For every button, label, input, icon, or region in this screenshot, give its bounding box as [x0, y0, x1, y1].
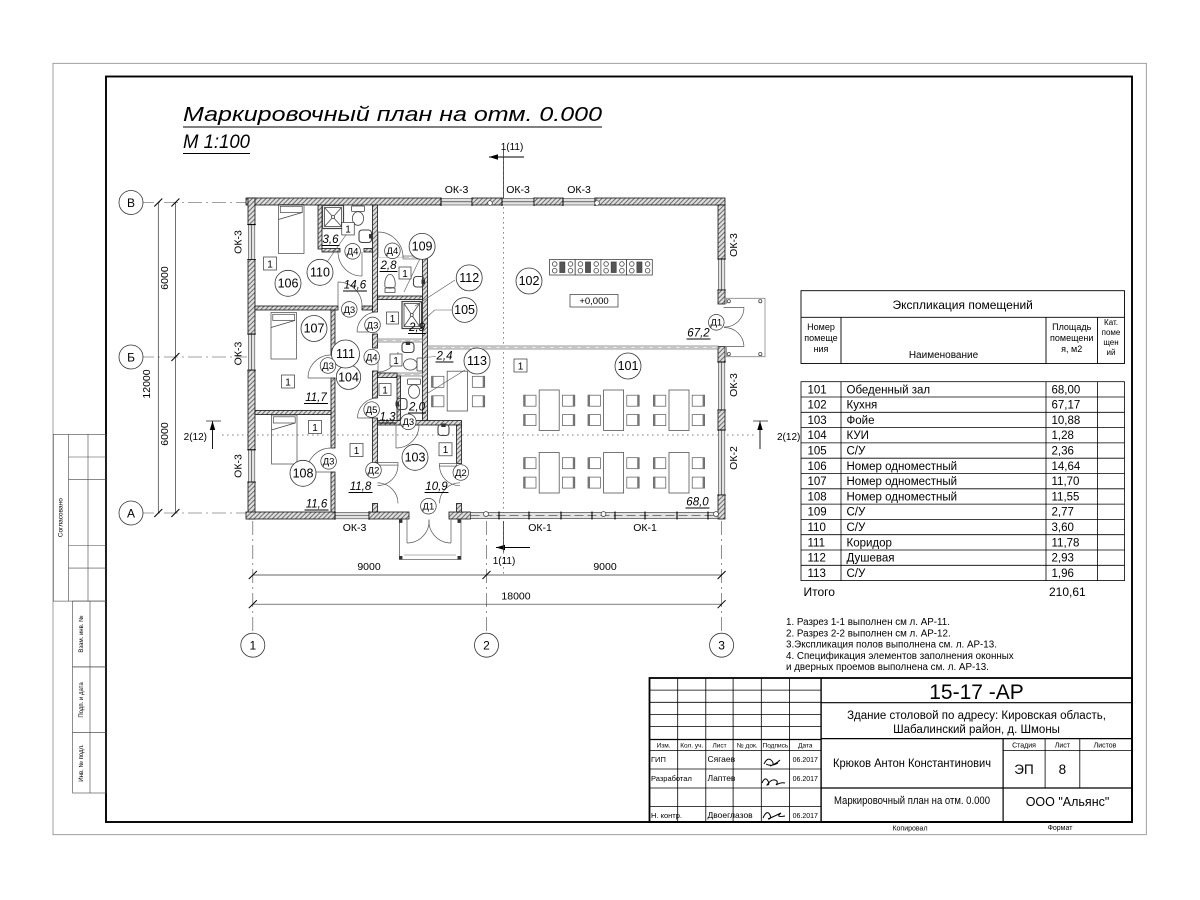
svg-text:3,60: 3,60 — [1052, 522, 1074, 534]
svg-text:Маркировочный план на отм. 0.: Маркировочный план на отм. 0.000 — [183, 103, 603, 126]
svg-text:Сягаев: Сягаев — [708, 754, 736, 764]
svg-text:6000: 6000 — [159, 266, 171, 290]
svg-text:111: 111 — [808, 537, 825, 549]
svg-text:+0,000: +0,000 — [579, 296, 608, 307]
svg-text:ния: ния — [814, 344, 829, 354]
svg-text:Здание столовой по адресу: Кир: Здание столовой по адресу: Кировская обл… — [847, 710, 1106, 722]
svg-text:Изм.: Изм. — [657, 743, 671, 750]
svg-text:ОК-3: ОК-3 — [233, 454, 245, 478]
svg-text:Номер одноместный: Номер одноместный — [847, 476, 958, 488]
svg-text:помещени: помещени — [1050, 333, 1093, 343]
svg-text:КУИ: КУИ — [847, 430, 869, 442]
svg-text:1: 1 — [402, 269, 408, 280]
svg-text:ОК-3: ОК-3 — [233, 230, 245, 254]
svg-text:4. Спецификация элементов запо: 4. Спецификация элементов заполнения око… — [786, 651, 1014, 662]
svg-text:Д2: Д2 — [368, 466, 380, 477]
svg-text:11,78: 11,78 — [1052, 537, 1080, 549]
svg-text:Экспликация помещений: Экспликация помещений — [893, 298, 1033, 312]
svg-text:12000: 12000 — [141, 369, 153, 398]
svg-text:А: А — [127, 507, 135, 521]
svg-text:Итого: Итого — [804, 585, 836, 599]
svg-text:11,8: 11,8 — [350, 481, 372, 493]
svg-text:Н. контр.: Н. контр. — [651, 811, 682, 820]
svg-text:ОК-3: ОК-3 — [343, 522, 367, 534]
svg-text:поме: поме — [1102, 328, 1121, 337]
svg-text:ГИП: ГИП — [651, 755, 666, 764]
svg-text:11,55: 11,55 — [1052, 491, 1080, 503]
svg-text:Кол. уч.: Кол. уч. — [680, 743, 703, 750]
svg-text:10,9: 10,9 — [425, 481, 448, 493]
svg-text:9000: 9000 — [357, 561, 381, 573]
svg-text:Обеденный зал: Обеденный зал — [847, 384, 931, 396]
svg-text:1. Разрез 1-1 выполнен см л. А: 1. Разрез 1-1 выполнен см л. АР-11. — [786, 617, 950, 628]
svg-text:Подп. и дата: Подп. и дата — [79, 682, 85, 718]
svg-text:10,88: 10,88 — [1052, 415, 1081, 427]
svg-text:Номер одноместный: Номер одноместный — [847, 461, 958, 473]
svg-text:107: 107 — [808, 476, 827, 488]
svg-text:Д5: Д5 — [366, 405, 378, 416]
svg-text:ОК-3: ОК-3 — [233, 342, 245, 366]
svg-text:102: 102 — [519, 274, 540, 288]
svg-text:Кат.: Кат. — [1104, 318, 1118, 327]
svg-text:2: 2 — [483, 639, 490, 653]
svg-text:ОК-3: ОК-3 — [728, 373, 740, 397]
svg-text:щен: щен — [1103, 338, 1118, 347]
svg-text:Копировал: Копировал — [892, 826, 927, 833]
svg-text:ОК-1: ОК-1 — [633, 522, 657, 534]
svg-text:ЭП: ЭП — [1014, 762, 1033, 777]
svg-text:ОК-3: ОК-3 — [445, 184, 469, 196]
svg-text:Д3: Д3 — [323, 457, 335, 468]
svg-text:Коридор: Коридор — [847, 537, 892, 549]
svg-text:ООО "Альянс": ООО "Альянс" — [1026, 795, 1110, 809]
svg-text:Номер: Номер — [807, 322, 835, 332]
svg-text:1: 1 — [393, 356, 399, 367]
svg-text:Инв. № подл.: Инв. № подл. — [78, 744, 85, 782]
svg-text:11,70: 11,70 — [1052, 476, 1080, 488]
svg-text:С/У: С/У — [847, 522, 867, 534]
svg-text:Дата: Дата — [798, 743, 813, 750]
svg-text:110: 110 — [808, 522, 826, 534]
svg-text:Фойе: Фойе — [847, 415, 875, 427]
svg-text:Д4: Д4 — [366, 353, 378, 364]
svg-text:Наименование: Наименование — [909, 350, 979, 361]
svg-text:и дверных проемов выполнена с: и дверных проемов выполнена см. л. АР-13… — [786, 662, 989, 673]
svg-text:Д2: Д2 — [455, 468, 467, 479]
svg-text:2(12): 2(12) — [184, 432, 207, 443]
svg-text:С/У: С/У — [847, 507, 867, 519]
svg-text:1: 1 — [267, 259, 273, 270]
svg-text:1,28: 1,28 — [1052, 430, 1074, 442]
svg-text:ОК-3: ОК-3 — [567, 184, 591, 196]
svg-text:Взам. инв. №: Взам. инв. № — [78, 615, 85, 652]
svg-text:В: В — [127, 196, 135, 210]
svg-text:С/У: С/У — [847, 568, 867, 580]
svg-text:104: 104 — [808, 430, 828, 442]
svg-text:103: 103 — [405, 451, 426, 465]
svg-text:Маркировочный план на отм. 0.: Маркировочный план на отм. 0.000 — [834, 795, 990, 807]
svg-text:3,6: 3,6 — [323, 234, 340, 246]
svg-text:1: 1 — [390, 314, 396, 325]
svg-text:109: 109 — [808, 507, 827, 519]
svg-text:Шабалинский район, д. Шмоны: Шабалинский район, д. Шмоны — [893, 724, 1060, 736]
svg-text:1: 1 — [518, 361, 524, 372]
svg-text:Лаптев: Лаптев — [708, 773, 736, 783]
svg-text:Площадь: Площадь — [1052, 322, 1091, 332]
svg-text:6000: 6000 — [159, 422, 171, 446]
svg-text:Формат: Формат — [1048, 825, 1074, 832]
svg-text:06.2017: 06.2017 — [793, 813, 818, 820]
svg-text:15-17 -АР: 15-17 -АР — [929, 681, 1024, 704]
svg-text:Душевая: Душевая — [847, 553, 895, 565]
svg-text:Листов: Листов — [1094, 743, 1117, 750]
svg-text:1: 1 — [312, 423, 318, 434]
svg-text:11,6: 11,6 — [306, 499, 328, 511]
svg-text:107: 107 — [304, 322, 325, 336]
svg-text:помеще: помеще — [804, 333, 837, 343]
svg-text:2. Разрез 2-2 выполнен см л. А: 2. Разрез 2-2 выполнен см л. АР-12. — [786, 628, 951, 639]
svg-text:Д3: Д3 — [343, 305, 355, 316]
svg-text:Д1: Д1 — [423, 502, 435, 513]
svg-text:Крюков Антон Константинович: Крюков Антон Константинович — [833, 756, 991, 770]
svg-text:ий: ий — [1107, 348, 1116, 357]
svg-text:М 1:100: М 1:100 — [183, 132, 250, 153]
svg-text:14,64: 14,64 — [1052, 461, 1081, 473]
svg-text:я, м2: я, м2 — [1061, 344, 1082, 354]
svg-text:Д3: Д3 — [402, 417, 414, 428]
svg-text:Б: Б — [127, 351, 135, 365]
svg-text:2,77: 2,77 — [1052, 507, 1074, 519]
svg-text:105: 105 — [454, 303, 475, 317]
svg-text:Стадия: Стадия — [1012, 743, 1036, 750]
svg-text:1(11): 1(11) — [501, 142, 524, 153]
svg-text:ОК-3: ОК-3 — [728, 233, 740, 257]
svg-text:68,0: 68,0 — [686, 497, 709, 509]
svg-text:101: 101 — [808, 384, 827, 396]
svg-text:Двоеглазов: Двоеглазов — [708, 810, 754, 820]
svg-text:67,2: 67,2 — [687, 328, 710, 340]
svg-text:1: 1 — [443, 445, 449, 456]
svg-text:112: 112 — [808, 553, 826, 565]
svg-text:1: 1 — [285, 377, 291, 388]
svg-text:2,0: 2,0 — [408, 402, 426, 414]
svg-text:Лист: Лист — [712, 743, 726, 750]
svg-text:1: 1 — [345, 225, 351, 236]
svg-text:1,3: 1,3 — [380, 412, 397, 424]
svg-text:3: 3 — [718, 639, 725, 653]
svg-text:101: 101 — [618, 359, 639, 373]
svg-text:Кухня: Кухня — [847, 400, 878, 412]
svg-text:210,61: 210,61 — [1049, 585, 1086, 599]
svg-text:9000: 9000 — [593, 561, 617, 573]
svg-text:68,00: 68,00 — [1052, 384, 1081, 396]
svg-text:Подпись: Подпись — [763, 743, 789, 750]
svg-text:110: 110 — [310, 266, 330, 280]
svg-text:108: 108 — [293, 467, 314, 481]
svg-text:2,9: 2,9 — [408, 322, 426, 334]
svg-text:1(11): 1(11) — [493, 556, 516, 567]
svg-text:8: 8 — [1059, 762, 1067, 777]
svg-text:Согласовано: Согласовано — [58, 498, 65, 537]
svg-text:ОК-1: ОК-1 — [528, 522, 552, 534]
svg-text:106: 106 — [808, 461, 827, 473]
svg-text:Лист: Лист — [1055, 743, 1071, 750]
svg-text:112: 112 — [459, 271, 479, 285]
svg-text:№ док.: № док. — [737, 743, 758, 750]
svg-text:1: 1 — [382, 385, 388, 396]
svg-text:Д3: Д3 — [322, 361, 334, 372]
svg-text:113: 113 — [467, 354, 487, 368]
svg-text:Номер одноместный: Номер одноместный — [847, 491, 958, 503]
svg-text:108: 108 — [808, 491, 827, 503]
svg-text:ОК-3: ОК-3 — [506, 184, 530, 196]
svg-text:06.2017: 06.2017 — [793, 757, 818, 764]
svg-text:111: 111 — [336, 347, 355, 361]
svg-text:2,93: 2,93 — [1052, 553, 1074, 565]
svg-text:18000: 18000 — [501, 591, 530, 603]
svg-text:Д3: Д3 — [367, 320, 379, 331]
svg-text:67,17: 67,17 — [1052, 400, 1081, 412]
svg-text:11,7: 11,7 — [305, 392, 327, 404]
svg-text:103: 103 — [808, 415, 827, 427]
svg-text:106: 106 — [278, 277, 299, 291]
svg-text:2,4: 2,4 — [436, 351, 453, 363]
svg-text:06.2017: 06.2017 — [793, 776, 818, 783]
svg-text:2,8: 2,8 — [380, 260, 398, 272]
svg-text:1,96: 1,96 — [1052, 568, 1074, 580]
svg-text:2,36: 2,36 — [1052, 446, 1074, 458]
svg-text:1: 1 — [354, 446, 360, 457]
svg-text:1: 1 — [249, 639, 256, 653]
svg-text:Д1: Д1 — [710, 318, 722, 329]
svg-text:109: 109 — [412, 240, 433, 254]
svg-text:Д4: Д4 — [387, 246, 399, 257]
svg-text:ОК-2: ОК-2 — [728, 446, 740, 470]
svg-text:104: 104 — [338, 370, 359, 384]
svg-text:3.Экспликация полов выполнена: 3.Экспликация полов выполнена см. л. АР-… — [786, 640, 997, 651]
svg-text:14,6: 14,6 — [344, 280, 367, 292]
svg-text:113: 113 — [808, 568, 826, 580]
svg-text:Разработал: Разработал — [651, 774, 692, 783]
svg-text:Д4: Д4 — [347, 247, 359, 258]
svg-text:С/У: С/У — [847, 446, 867, 458]
svg-text:105: 105 — [808, 446, 827, 458]
svg-text:102: 102 — [808, 400, 827, 412]
svg-text:2(12): 2(12) — [777, 432, 800, 443]
